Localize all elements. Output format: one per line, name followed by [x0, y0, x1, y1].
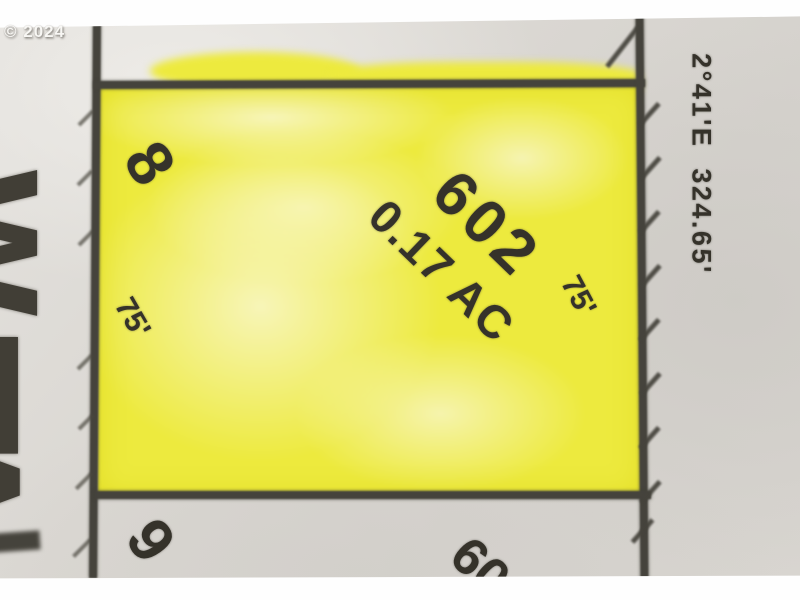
copyright-watermark: © 2024 [4, 22, 65, 42]
street-letter-fragment-4 [0, 530, 41, 552]
boundary-line-bottom [95, 491, 651, 499]
bearing-distance-label: 2°41'E 324.65' [688, 53, 715, 275]
lot-9-label: 9 [115, 509, 186, 573]
photo-border-top [0, 0, 800, 28]
street-letter-fragment-1: W [0, 166, 52, 320]
photo-border-bottom [0, 576, 800, 600]
street-letter-fragment-3: A [0, 436, 32, 529]
plat-map-photo: W E A 8 602 0.17 AC 75' 75' 9 60 2°41'E … [0, 0, 800, 600]
hatch-mark [605, 26, 640, 68]
